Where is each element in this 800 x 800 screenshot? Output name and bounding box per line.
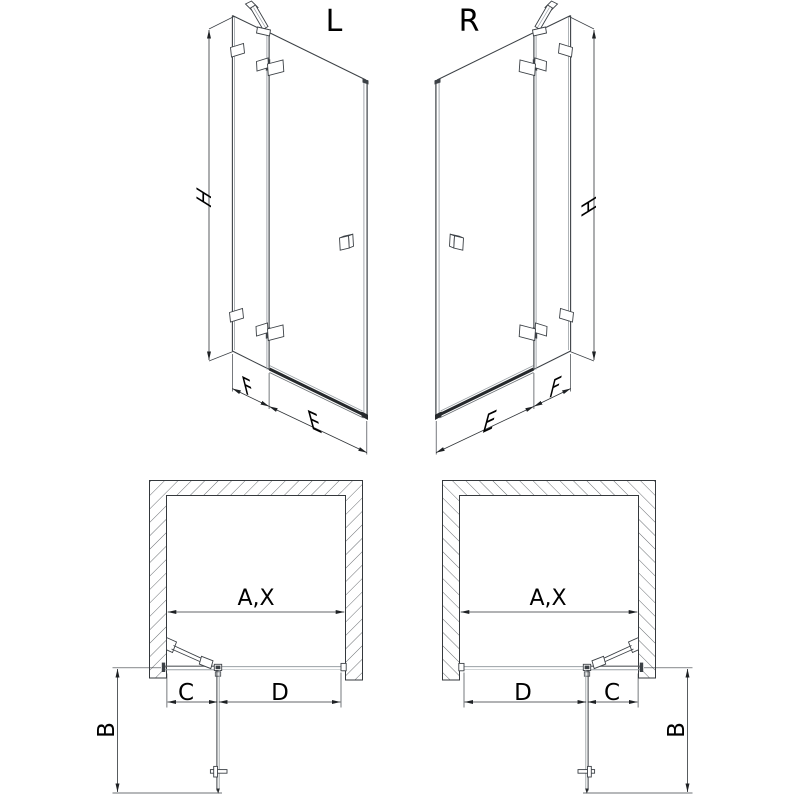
label-height-left: H xyxy=(194,184,217,213)
technical-drawing-page: L R H H F E F E A,X A,X C D D C B B xyxy=(0,0,800,800)
label-fixed-width-left: F xyxy=(239,371,257,405)
label-fixed-width-right: F xyxy=(546,371,564,405)
label-variant-left: L xyxy=(326,4,343,39)
label-opening-right: A,X xyxy=(529,586,566,611)
label-depth-right: B xyxy=(664,722,690,738)
label-fixed-segment-left: C xyxy=(178,680,194,706)
elevation-left-geometry xyxy=(209,1,369,455)
label-door-segment-right: D xyxy=(514,680,532,706)
label-opening-left: A,X xyxy=(237,586,274,611)
label-door-width-left: E xyxy=(304,403,324,440)
elevation-right-geometry xyxy=(435,1,595,455)
label-variant-right: R xyxy=(459,4,480,39)
label-door-segment-left: D xyxy=(271,680,289,706)
label-door-width-right: E xyxy=(479,403,499,440)
label-fixed-segment-right: C xyxy=(604,680,620,706)
label-height-right: H xyxy=(579,191,602,220)
plan-left-geometry xyxy=(113,481,363,794)
plan-right-geometry xyxy=(443,481,693,794)
shower-door-diagram: L R H H F E F E A,X A,X C D D C B B xyxy=(0,0,800,800)
label-depth-left: B xyxy=(94,722,120,738)
